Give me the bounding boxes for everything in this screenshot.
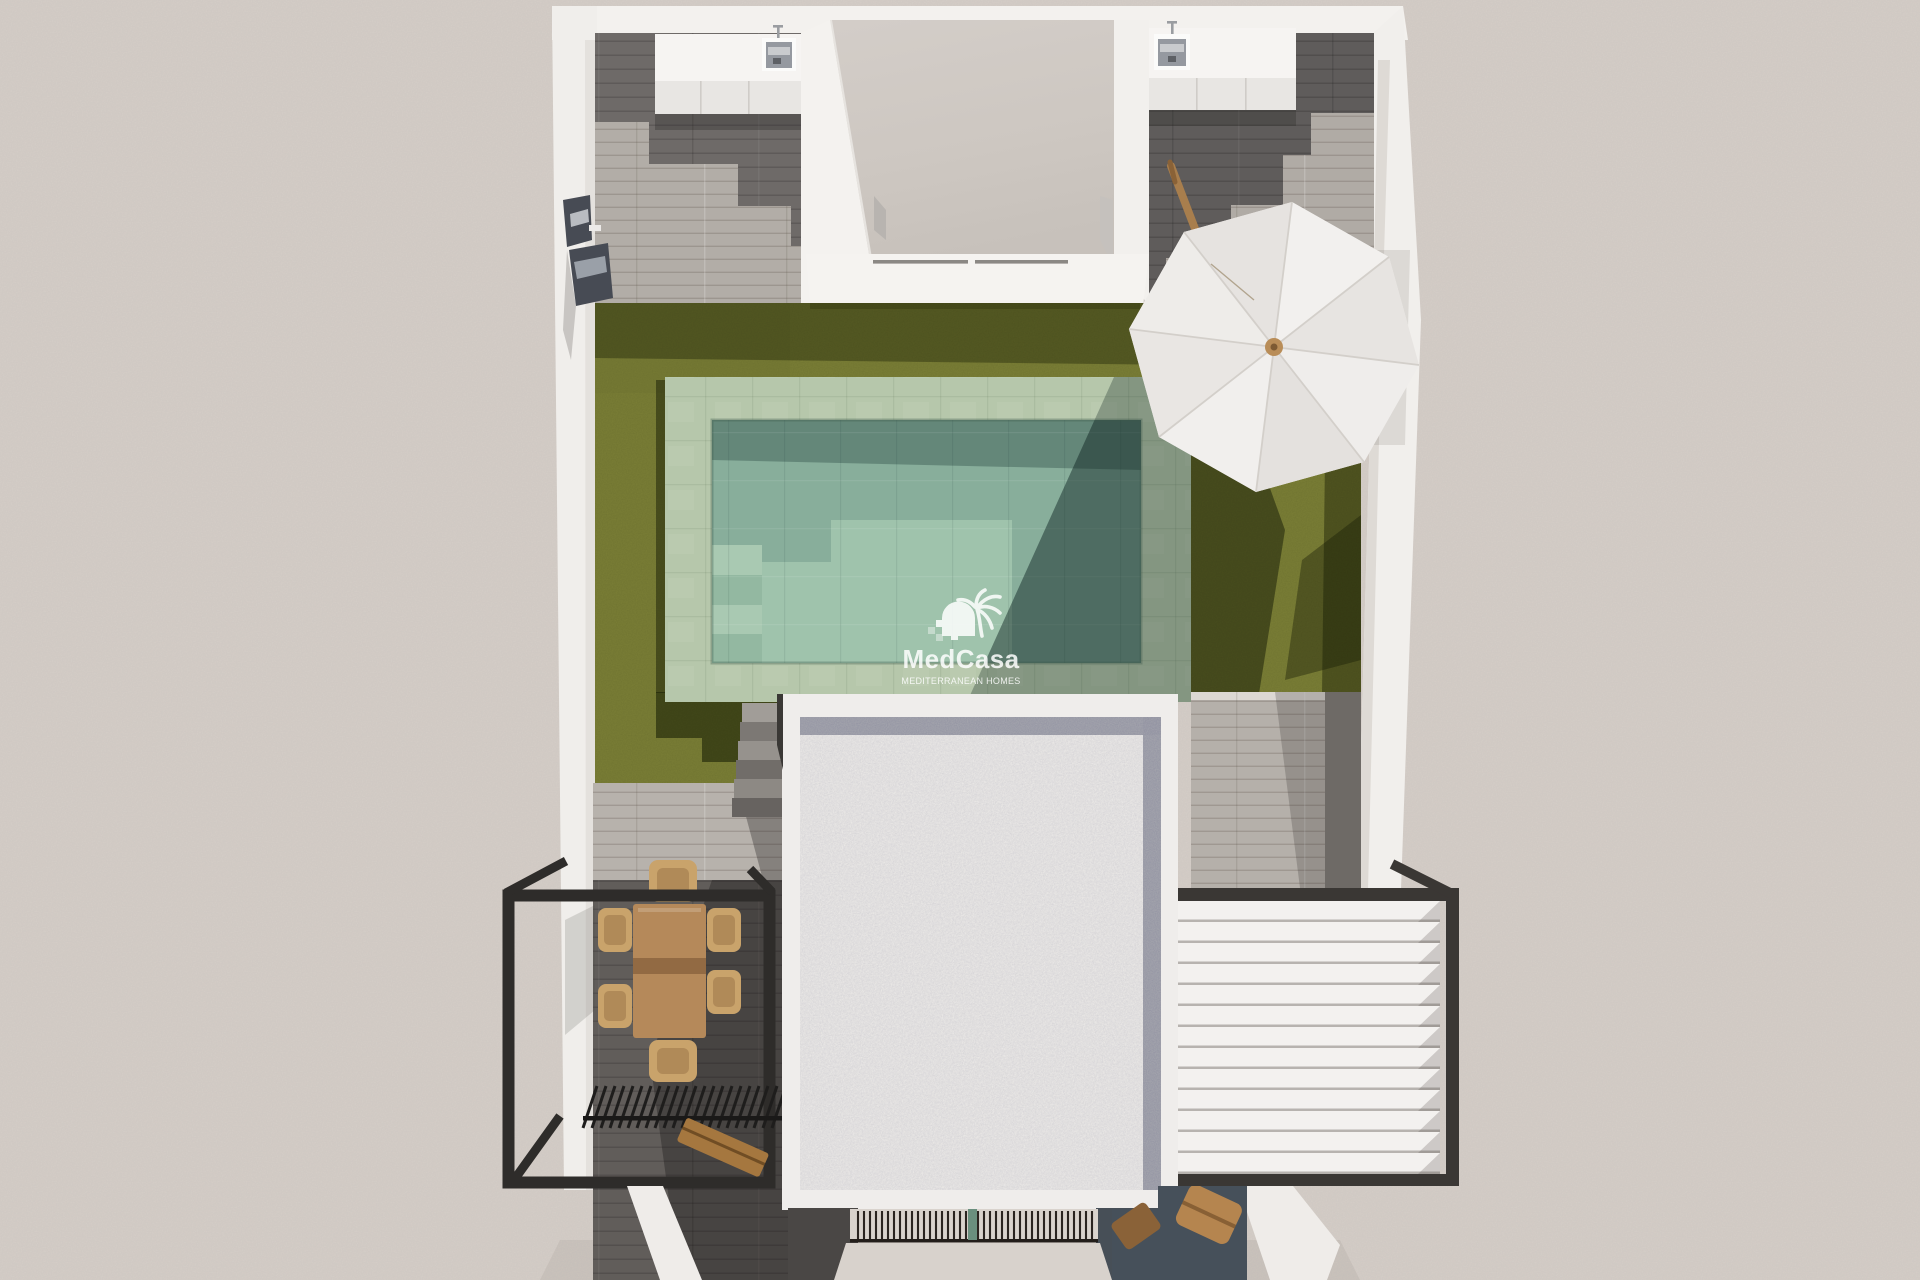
svg-text:MEDITERRANEAN HOMES: MEDITERRANEAN HOMES <box>901 676 1020 686</box>
svg-text:MedCasa: MedCasa <box>903 644 1020 674</box>
